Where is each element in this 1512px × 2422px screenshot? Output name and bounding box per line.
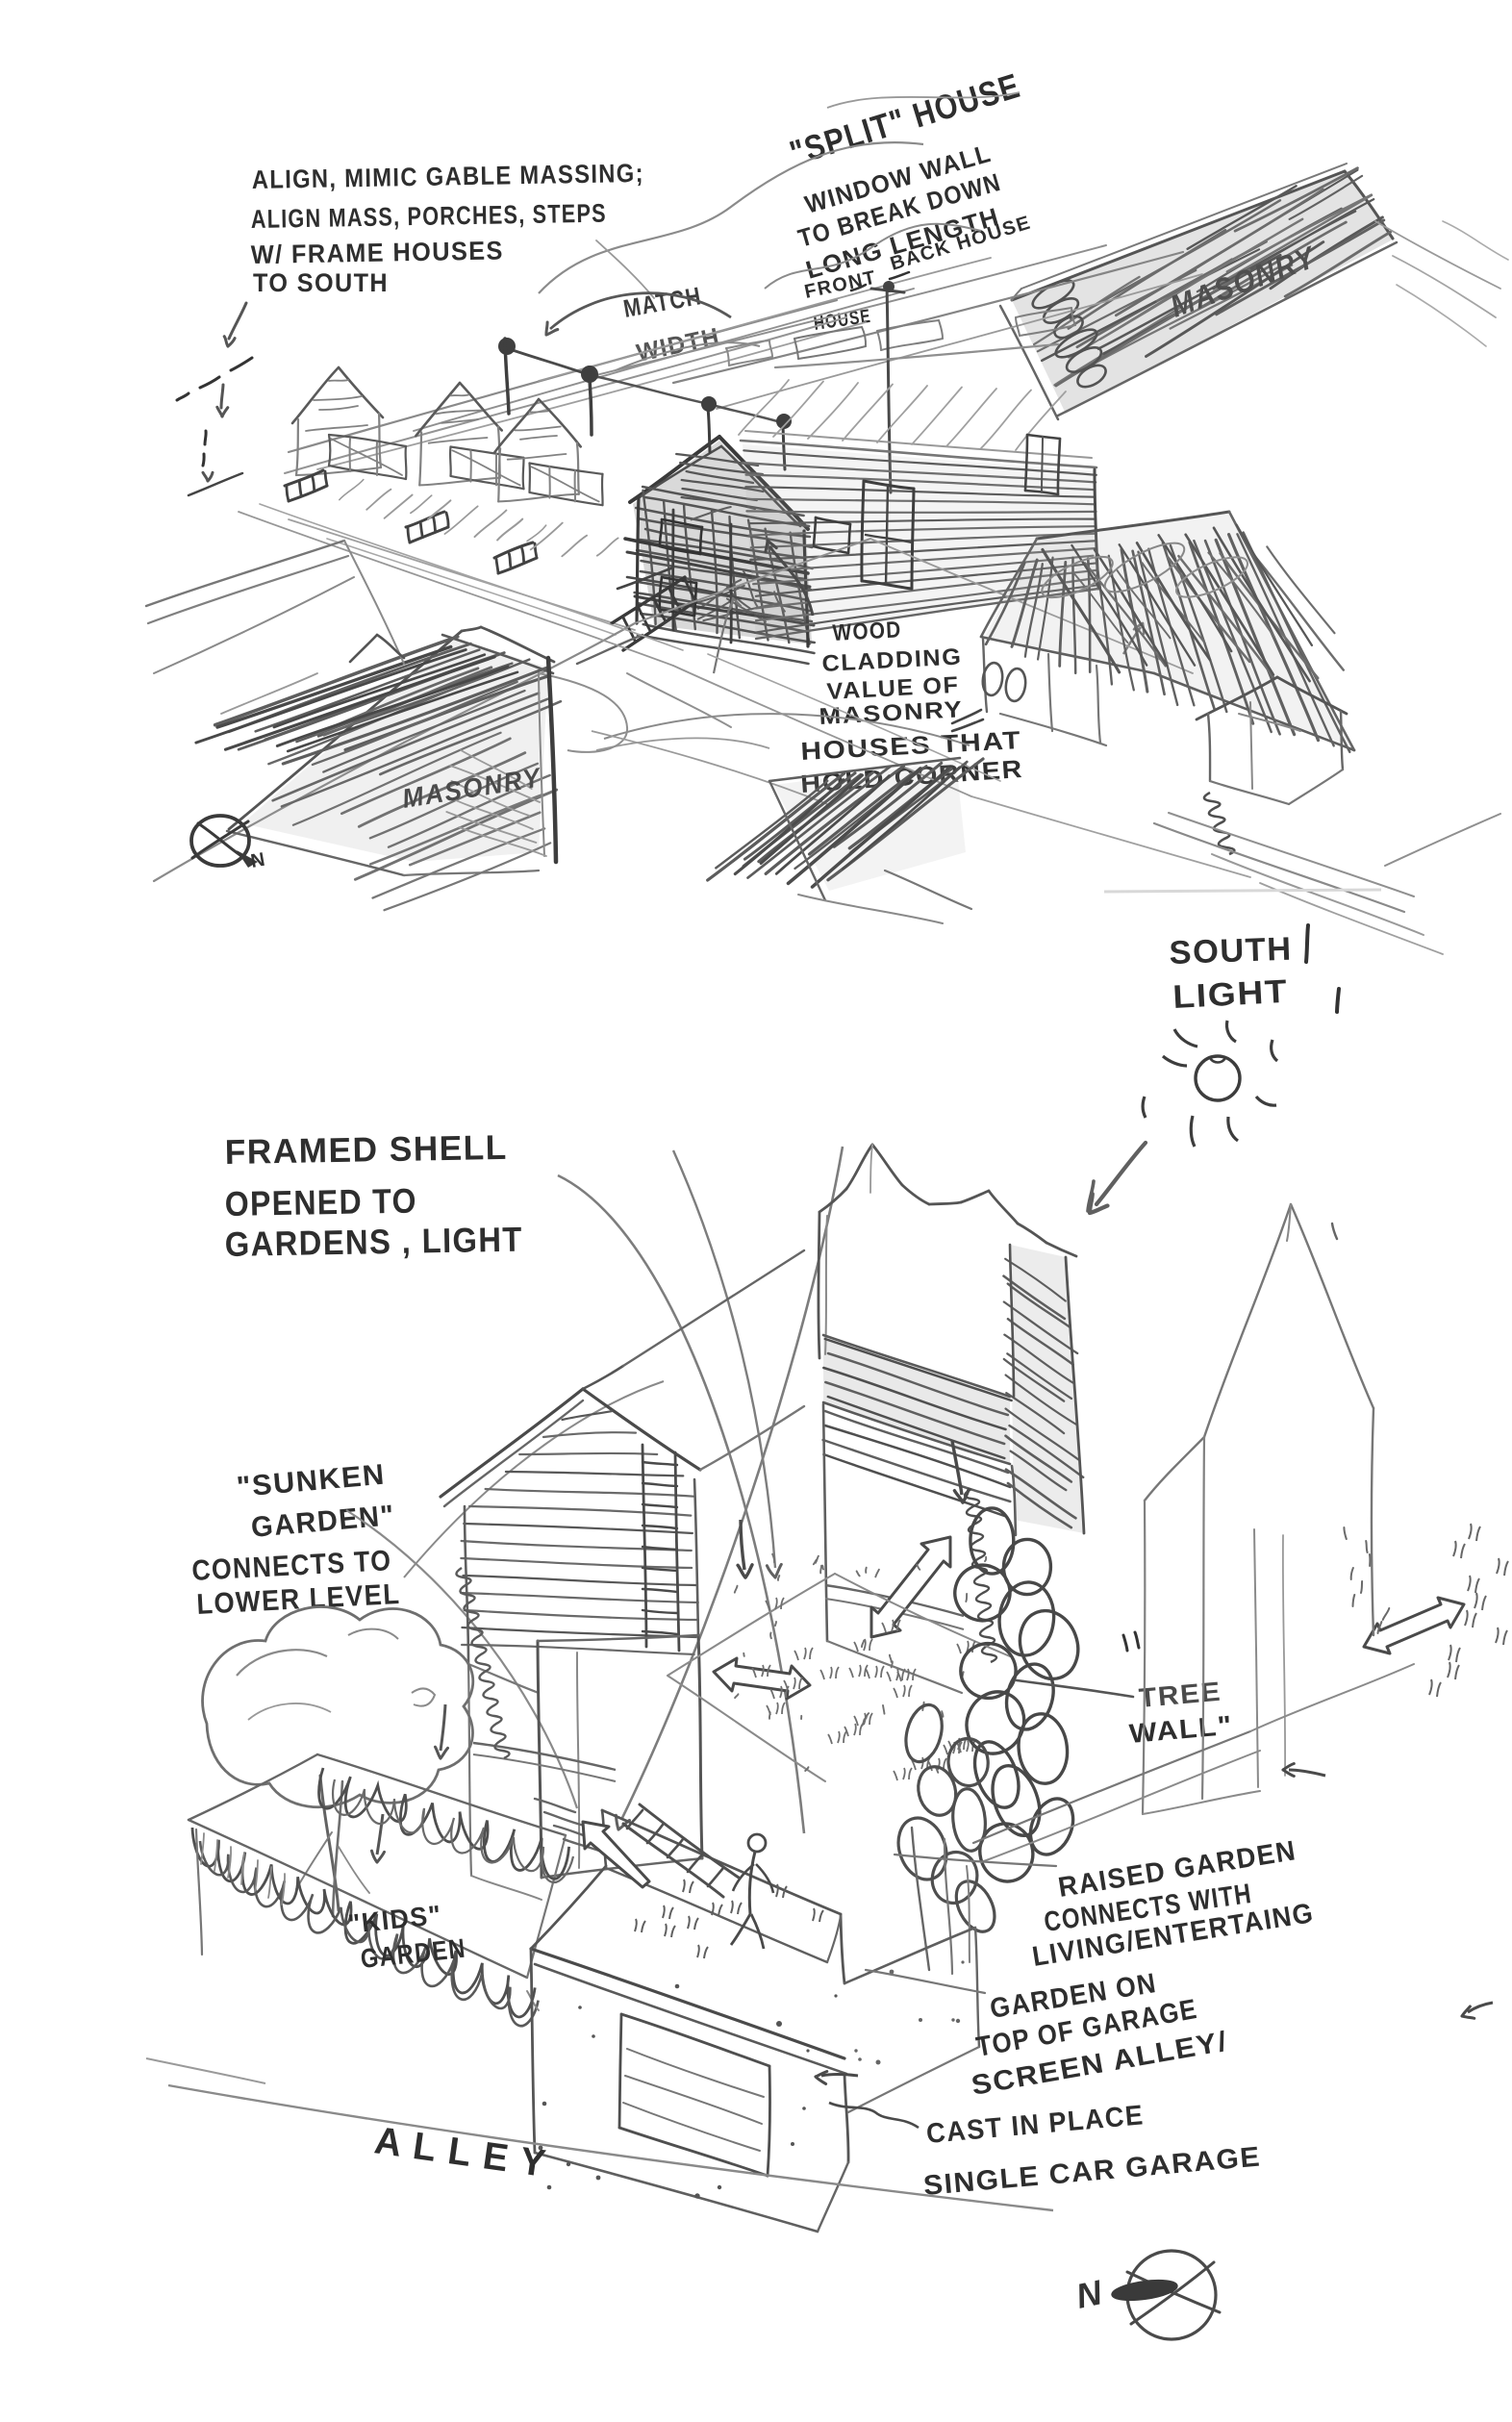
svg-text:SOUTH: SOUTH <box>1169 931 1293 971</box>
svg-text:LIGHT: LIGHT <box>1172 973 1289 1016</box>
svg-text:GARDENS , LIGHT: GARDENS , LIGHT <box>224 1220 523 1264</box>
svg-text:WOOD: WOOD <box>832 617 902 646</box>
svg-text:FRAMED SHELL: FRAMED SHELL <box>224 1127 508 1172</box>
svg-text:OPENED TO: OPENED TO <box>224 1181 417 1224</box>
svg-text:TO SOUTH: TO SOUTH <box>253 268 389 297</box>
svg-text:W/ FRAME HOUSES: W/ FRAME HOUSES <box>251 236 504 269</box>
